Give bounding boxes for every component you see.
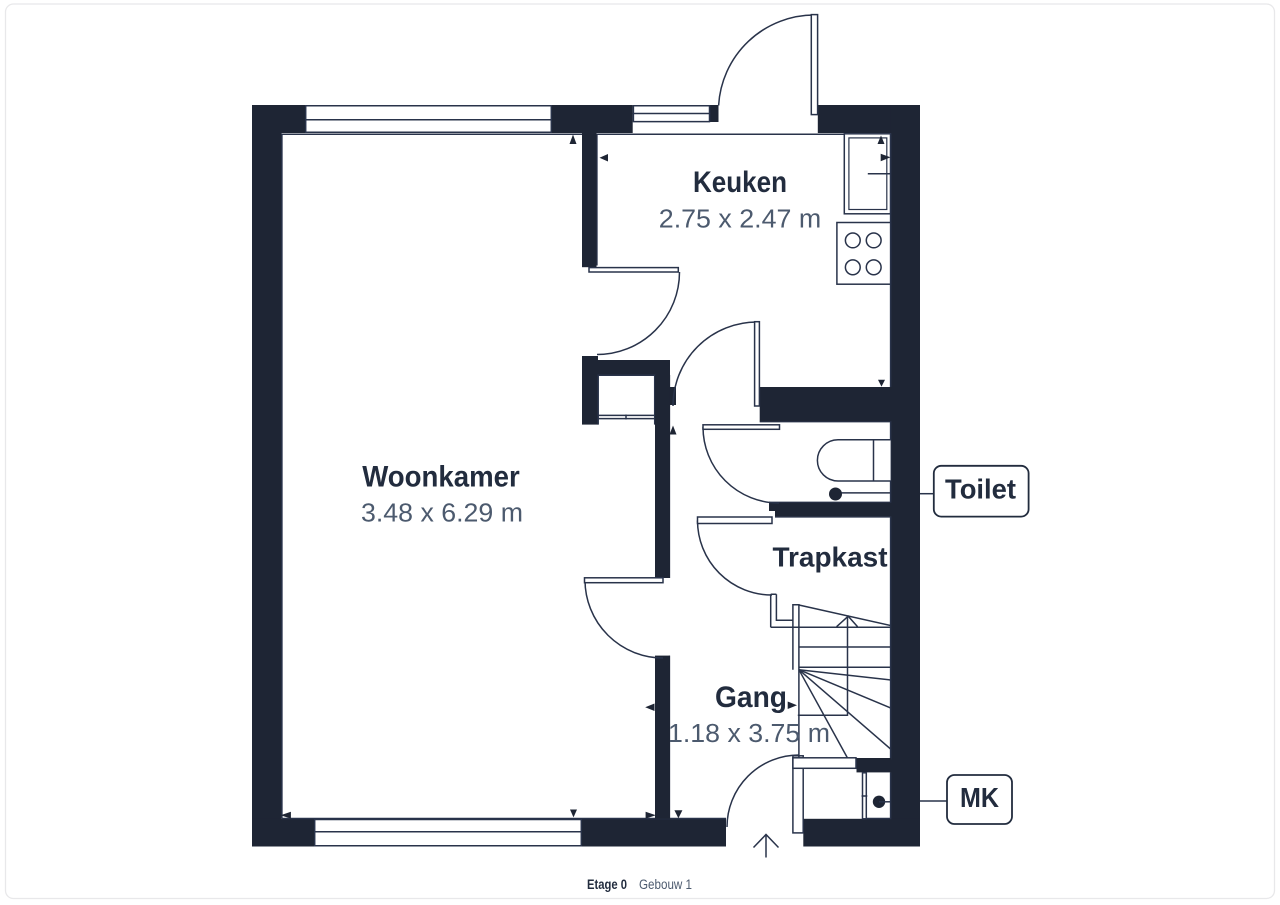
svg-text:MK: MK xyxy=(960,782,999,813)
svg-text:Gebouw 1: Gebouw 1 xyxy=(639,877,692,892)
svg-text:2.75 x 2.47 m: 2.75 x 2.47 m xyxy=(659,205,821,233)
svg-text:Trapkast: Trapkast xyxy=(773,541,888,572)
svg-text:3.48 x 6.29 m: 3.48 x 6.29 m xyxy=(361,500,523,528)
svg-text:Keuken: Keuken xyxy=(693,166,787,199)
svg-text:Woonkamer: Woonkamer xyxy=(362,460,520,493)
svg-text:Gang: Gang xyxy=(715,681,787,714)
svg-text:1.18 x 3.75 m: 1.18 x 3.75 m xyxy=(668,720,830,748)
svg-text:Toilet: Toilet xyxy=(945,473,1016,504)
svg-text:Etage 0: Etage 0 xyxy=(587,877,627,892)
